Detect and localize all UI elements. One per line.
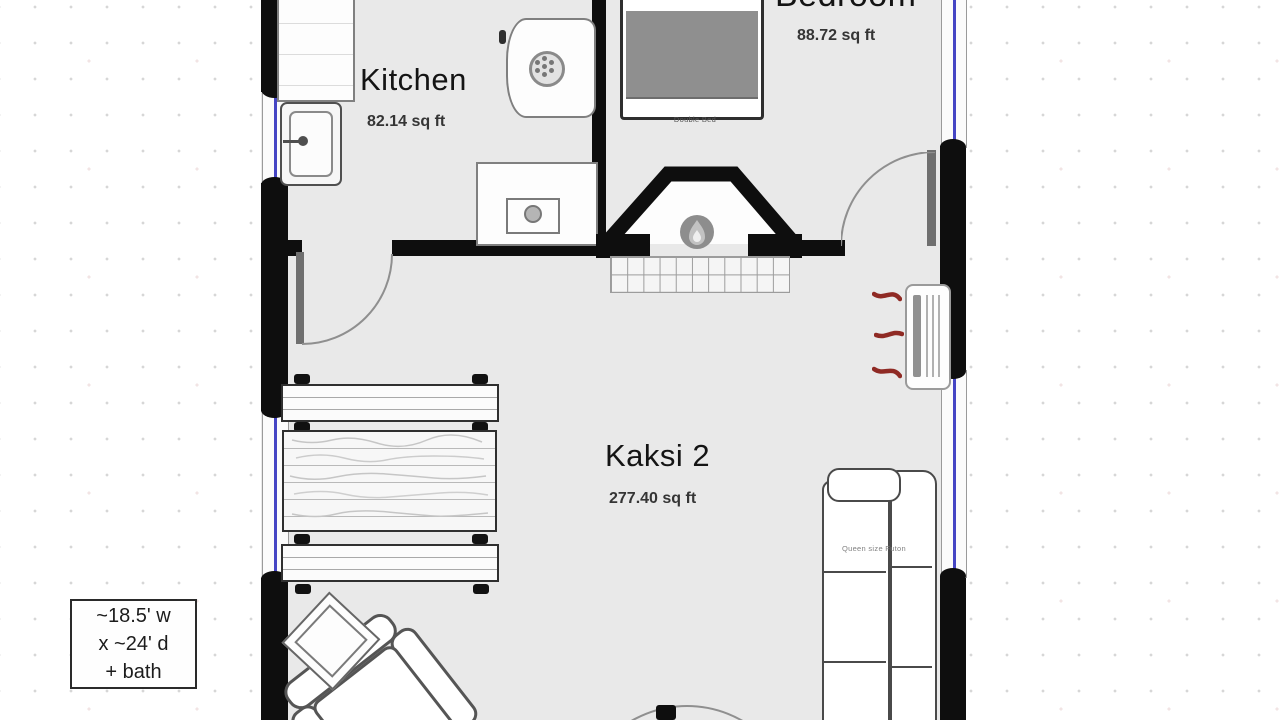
futon-seat [822,480,890,720]
bench-bottom [281,544,499,582]
double-bed [620,0,764,120]
heat-arrow-icon [872,362,902,380]
dimension-line-3: + bath [105,658,161,686]
dimension-note-box: ~18.5' w x ~24' d + bath [70,599,197,689]
cooktop-dot-icon [524,205,542,223]
window-bedroom-right [941,0,967,148]
futon-seam [823,571,886,573]
fireplace [596,164,804,258]
futon-seam [891,566,932,568]
entry-door-jamb [656,705,676,720]
futon-seam [823,661,886,663]
kitchen-counter [277,0,355,102]
bench-foot [295,584,311,594]
sink-basin [289,111,333,177]
window-living-right [941,370,967,578]
floor-plan-canvas: Double Bed [0,0,1280,720]
bed-label: Double Bed [630,115,760,124]
window-pane [953,0,956,148]
burner-vent-dots [542,64,547,69]
futon-seam [891,666,932,668]
wall-cap [940,139,966,155]
wood-grain [284,432,495,530]
bench-top [281,384,499,422]
window-pane [953,370,956,578]
heater-slat [938,295,940,377]
dining-table [282,430,497,532]
wall-right-bottom [940,576,966,720]
heater-slat [926,295,928,377]
kitchen-door-swing-arc [302,254,394,346]
dimension-line-2: x ~24' d [99,630,169,658]
heater-slat [913,295,921,377]
heat-arrow-icon [872,286,902,304]
bedroom-door-swing-arc [841,152,935,246]
bench-foot [294,374,310,384]
room-label-living: Kaksi 2 [605,438,710,474]
room-area-kitchen: 82.14 sq ft [367,113,445,131]
bench-foot [472,374,488,384]
futon-headrest [827,468,901,502]
bench-foot [473,584,489,594]
wall-cap [940,568,966,584]
wall-left-middle [261,183,288,411]
heater-slat [932,295,934,377]
futon-label: Queen size Futon [822,544,926,553]
dimension-line-1: ~18.5' w [96,602,170,630]
bench-foot [294,534,310,544]
room-area-bedroom: 88.72 sq ft [797,27,875,45]
window-pane [274,90,277,185]
room-label-bedroom: Bedroom [775,0,916,15]
room-area-living: 277.40 sq ft [609,490,696,508]
window-pane [274,409,277,580]
appliance-knob [499,30,506,44]
bench-foot [472,534,488,544]
bed-blanket [626,11,758,99]
faucet-icon [298,136,308,146]
kitchen-sink [280,102,342,186]
wall-heater [905,284,951,390]
room-label-kitchen: Kitchen [360,62,467,98]
fireplace-hearth-tiles [610,256,790,293]
futon-back [890,470,937,720]
heat-arrow-icon [874,328,904,342]
burner-icon [529,51,565,87]
